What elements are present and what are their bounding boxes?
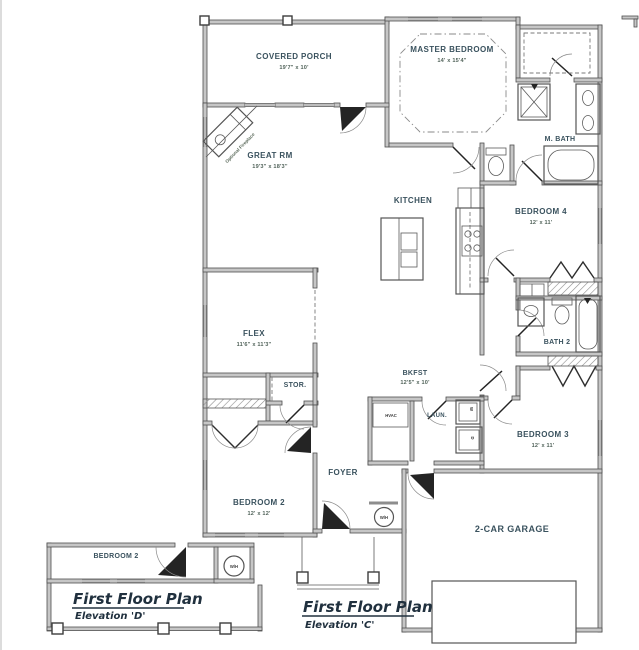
closet-shelf-hatch: [203, 399, 266, 408]
room-label-stor: STOR.: [284, 382, 307, 389]
walls: [203, 16, 638, 632]
window: [82, 579, 110, 583]
door-hall-to-bedroom-wing: [480, 365, 506, 391]
window: [245, 103, 275, 107]
closet-shelf-dashed: [524, 33, 590, 73]
door-bath2: [518, 310, 544, 336]
door-master-bedroom: [453, 147, 479, 173]
floor-plan-svg: COVERED PORCH 19'7" x 10' MASTER BEDROOM…: [0, 0, 639, 650]
room-dims-bedroom3: 12' x 11': [532, 443, 555, 449]
room-label-bedroom4: BEDROOM 4: [515, 207, 567, 216]
bifold-closet-bedroom3: [552, 366, 596, 386]
bathtub-icon: [576, 296, 600, 352]
room-dims-master-bedroom: 14' x 15'4": [437, 58, 466, 64]
double-vanity-icon: [576, 84, 600, 134]
annotation-washer: W: [469, 407, 474, 411]
window: [117, 579, 145, 583]
bathtub-icon: [544, 146, 598, 184]
captions: First Floor Plan Elevation 'D' First Flo…: [72, 590, 433, 631]
window: [258, 533, 284, 537]
closet-shelf-hatch: [548, 282, 598, 295]
room-label-garage: 2-CAR GARAGE: [475, 524, 549, 534]
toilet-icon: [486, 148, 506, 176]
scan-edge-artifact: [0, 0, 2, 650]
kitchen-island: [381, 218, 423, 280]
shower-icon: [518, 84, 550, 120]
room-label-bedroom2: BEDROOM 2: [233, 498, 285, 507]
caption-left-title: First Floor Plan: [73, 590, 203, 608]
window: [203, 305, 207, 337]
room-label-bedroom2-alt: BEDROOM 2: [93, 553, 138, 560]
fireplace-icon: [203, 106, 257, 157]
toilet-icon: [552, 298, 572, 324]
caption-center-subtitle: Elevation 'C': [305, 620, 374, 631]
room-label-kitchen: KITCHEN: [394, 196, 432, 205]
double-door-bedroom2: [212, 425, 258, 448]
room-label-covered-porch: COVERED PORCH: [256, 52, 332, 61]
floor-plan-drawing: COVERED PORCH 19'7" x 10' MASTER BEDROOM…: [0, 0, 639, 650]
doors: [212, 54, 596, 529]
bifold-closet-bedroom4: [550, 262, 594, 278]
room-label-bkfst: BKFST: [403, 370, 428, 377]
room-label-bath2: BATH 2: [544, 339, 571, 346]
room-label-hvac: HVAC: [385, 413, 397, 418]
door-bedroom2-alt: [156, 547, 186, 577]
window: [408, 17, 438, 21]
door-front-entry: [322, 501, 350, 529]
annotation-dryer: D: [470, 436, 475, 439]
door-bedroom2: [285, 427, 311, 453]
cooktop-icon: [462, 226, 482, 256]
room-label-master-bedroom: MASTER BEDROOM: [410, 45, 493, 54]
room-label-master-bath: M. BATH: [545, 136, 576, 143]
room-dims-bedroom2: 12' x 12': [247, 511, 271, 517]
window: [203, 460, 207, 490]
window: [215, 533, 245, 537]
garage-door-apron: [432, 581, 576, 643]
room-dims-flex: 11'6" x 11'3": [237, 342, 272, 348]
room-labels: COVERED PORCH 19'7" x 10' MASTER BEDROOM…: [93, 45, 575, 569]
room-dims-bedroom4: 12' x 11': [530, 220, 553, 226]
door-master-bath: [516, 155, 542, 181]
windows: [203, 17, 602, 537]
front-porch: [297, 537, 379, 589]
window: [598, 420, 602, 456]
dryer-icon: [456, 427, 482, 453]
room-dims-bkfst: 12'5" x 10': [400, 380, 430, 386]
annotation-water-heater: W/H: [380, 515, 388, 520]
window: [452, 17, 482, 21]
closet-shelf-hatch: [548, 356, 598, 366]
window: [304, 103, 334, 107]
room-label-laundry: LAUN.: [427, 413, 447, 419]
closet-cabinet: [520, 284, 544, 296]
room-label-foyer: FOYER: [328, 468, 358, 477]
window: [598, 208, 602, 244]
room-label-great-rm: GREAT RM: [247, 151, 292, 160]
fixtures: [203, 33, 600, 643]
room-label-flex: FLEX: [243, 329, 265, 338]
door-porch-to-great-room: [340, 107, 366, 133]
door-garage-entry: [408, 473, 434, 499]
door-bedroom4: [488, 250, 514, 276]
caption-center-title: First Floor Plan: [303, 598, 433, 616]
washer-icon: [456, 400, 480, 424]
caption-left-subtitle: Elevation 'D': [75, 611, 145, 622]
room-label-bedroom3: BEDROOM 3: [517, 430, 569, 439]
annotation-water-heater-alt: W/H: [230, 564, 238, 569]
room-dims-great-rm: 19'3" x 18'3": [252, 164, 288, 170]
door-bedroom3: [488, 400, 512, 424]
room-dims-covered-porch: 19'7" x 10': [279, 65, 309, 71]
